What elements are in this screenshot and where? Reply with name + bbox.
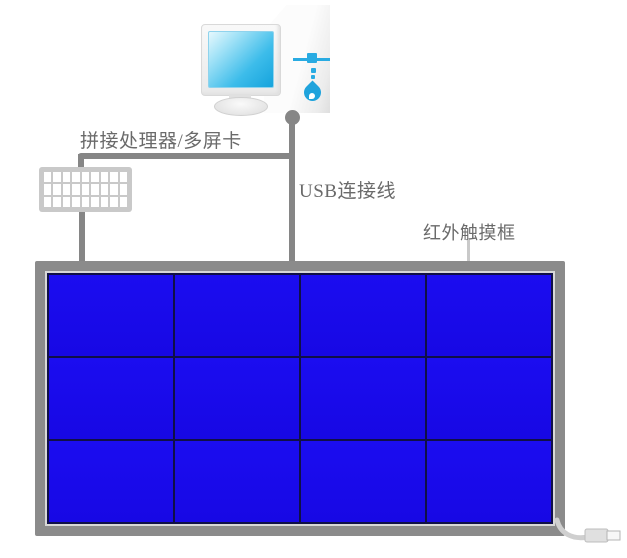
usb-plug-body-icon [585,529,608,542]
wall-panel [301,275,425,356]
wall-panel [301,441,425,522]
splitter-cell [110,184,117,194]
splitter-cell [63,172,70,182]
splitter-cell [53,184,60,194]
splitter-cell [63,197,70,207]
splitter-cell [72,172,79,182]
splitter-cell [72,184,79,194]
tower-power-logo-core-icon [309,93,315,99]
usb-cable-label: USB连接线 [299,176,396,203]
splitter-cell [72,197,79,207]
splitter-cell [53,197,60,207]
wall-panel [427,358,551,439]
processor-cable-line [78,153,295,159]
usb-cable-line [289,121,295,263]
splitter-cell [120,172,127,182]
monitor-stand-base-icon [214,97,268,116]
diagram-canvas: 拼接处理器/多屏卡 USB连接线 红外触摸框 [0,0,627,558]
wall-panel [49,275,173,356]
splitter-grid [44,172,127,207]
usb-cable-tail [550,513,627,555]
splitter-to-wall-cable-line [79,207,85,263]
splitter-cell [82,197,89,207]
wall-panel [175,358,299,439]
splitter-cell [44,172,51,182]
wall-panel [49,358,173,439]
video-wall-frame [35,261,565,536]
tower-led-icon [311,68,316,73]
splitter-cell [44,184,51,194]
touch-frame-pointer-line [467,240,470,261]
splitter-cell [91,172,98,182]
splitter-cell [44,197,51,207]
wall-panel [175,441,299,522]
splitter-cell [91,184,98,194]
monitor-screen-icon [208,31,274,88]
usb-plug-tip-icon [607,531,620,540]
wall-panel [301,358,425,439]
splitter-cell [110,197,117,207]
splitter-cell [101,197,108,207]
wall-panel [175,275,299,356]
tower-led-icon [311,75,315,79]
splitter-cell [120,197,127,207]
splitter-cell [101,184,108,194]
wall-panel [427,441,551,522]
splitter-device-icon [39,167,132,212]
splitter-cell [91,197,98,207]
tower-drive-button-icon [307,53,317,63]
splitter-cell [53,172,60,182]
splitter-cell [110,172,117,182]
wall-panel [427,275,551,356]
processor-label: 拼接处理器/多屏卡 [80,126,242,153]
usb-tail-cable-line [557,520,588,538]
splitter-cell [82,172,89,182]
splitter-cell [82,184,89,194]
splitter-cell [63,184,70,194]
splitter-cell [101,172,108,182]
splitter-cell [120,184,127,194]
wall-panel [49,441,173,522]
wall-grid [49,275,551,522]
